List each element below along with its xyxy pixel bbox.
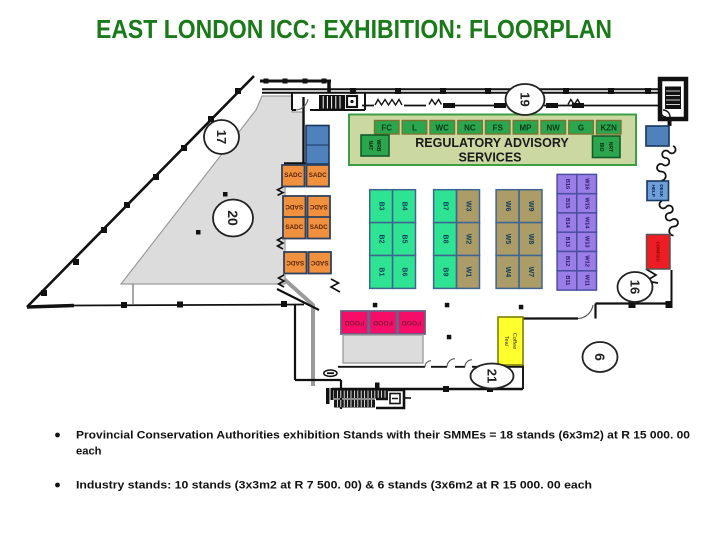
svg-text:MP: MP <box>520 124 533 133</box>
svg-text:NW: NW <box>547 124 561 133</box>
svg-text:B13: B13 <box>564 237 570 247</box>
svg-text:NRT: NRT <box>607 142 613 152</box>
svg-text:SADC: SADC <box>309 203 327 210</box>
svg-text:SADC: SADC <box>285 224 303 231</box>
svg-text:B12: B12 <box>564 256 570 266</box>
svg-text:B6: B6 <box>401 267 408 276</box>
svg-text:W2: W2 <box>465 234 472 245</box>
svg-text:DESK: DESK <box>659 184 664 197</box>
svg-text:FC: FC <box>381 124 392 133</box>
svg-text:SADC: SADC <box>310 259 328 266</box>
svg-text:16: 16 <box>628 280 643 294</box>
svg-text:B2: B2 <box>378 235 385 244</box>
svg-text:6: 6 <box>592 353 608 361</box>
svg-text:W15: W15 <box>584 198 590 210</box>
svg-text:W6: W6 <box>504 201 511 212</box>
svg-text:W5: W5 <box>504 234 511 245</box>
svg-text:W8: W8 <box>527 234 534 245</box>
svg-text:19: 19 <box>518 92 533 106</box>
svg-text:CONFISC: CONFISC <box>656 241 661 262</box>
svg-text:B9: B9 <box>442 267 449 276</box>
svg-text:17: 17 <box>214 130 229 144</box>
svg-text:NAT: NAT <box>367 141 373 151</box>
svg-text:SADC: SADC <box>285 203 303 210</box>
svg-text:W16: W16 <box>584 178 590 190</box>
svg-text:W7: W7 <box>527 267 534 278</box>
svg-text:Coffee: Coffee <box>511 333 517 349</box>
svg-text:FS: FS <box>493 124 504 133</box>
svg-text:W9: W9 <box>527 201 534 212</box>
svg-text:20: 20 <box>225 210 241 226</box>
svg-text:each: each <box>76 446 102 458</box>
svg-text:B3: B3 <box>378 202 385 211</box>
svg-text:FOOD: FOOD <box>402 319 422 326</box>
svg-text:B15: B15 <box>564 198 570 208</box>
svg-text:W4: W4 <box>504 267 511 278</box>
svg-text:B16: B16 <box>564 179 570 189</box>
svg-text:KZN: KZN <box>600 124 617 133</box>
svg-text:W11: W11 <box>584 275 590 286</box>
svg-text:G: G <box>578 124 584 133</box>
svg-text:W1: W1 <box>465 267 472 278</box>
svg-text:W13: W13 <box>584 236 590 248</box>
svg-text:L: L <box>412 124 417 133</box>
svg-text:Provincial Conservation Author: Provincial Conservation Authorities exhi… <box>76 430 690 442</box>
svg-text:B7: B7 <box>442 202 449 211</box>
svg-text:FOOD: FOOD <box>373 319 393 326</box>
svg-text:B8: B8 <box>442 235 449 244</box>
svg-text:Industry stands: 10 stands (3x: Industry stands: 10 stands (3x3m2 at R 7… <box>76 480 592 492</box>
svg-text:W14: W14 <box>584 217 590 229</box>
svg-text:HELP: HELP <box>651 185 656 197</box>
svg-text:B1: B1 <box>378 267 385 276</box>
svg-text:REGULATORY ADVISORY: REGULATORY ADVISORY <box>415 136 569 150</box>
svg-text:SADC: SADC <box>309 172 327 179</box>
svg-text:SERVICES: SERVICES <box>459 151 522 165</box>
svg-text:NC: NC <box>464 124 476 133</box>
svg-text:W12: W12 <box>584 255 590 267</box>
svg-text:W3: W3 <box>465 201 472 212</box>
svg-text:B14: B14 <box>564 217 570 228</box>
svg-text:B11: B11 <box>564 275 570 285</box>
svg-text:B5: B5 <box>401 235 408 244</box>
svg-text:21: 21 <box>485 369 500 383</box>
svg-text:EAST LONDON ICC: EXHIBITION: F: EAST LONDON ICC: EXHIBITION: FLOORPLAN <box>96 16 612 44</box>
svg-text:Tea/: Tea/ <box>503 336 509 347</box>
svg-text:WC: WC <box>436 124 450 133</box>
svg-text:WRB: WRB <box>375 140 381 152</box>
svg-text:B4: B4 <box>401 202 408 211</box>
svg-text:FOOD: FOOD <box>345 319 365 326</box>
svg-text:SADC: SADC <box>286 259 304 266</box>
svg-text:SADC: SADC <box>284 172 302 179</box>
svg-text:SADC: SADC <box>310 224 328 231</box>
svg-text:BIO: BIO <box>598 143 604 152</box>
